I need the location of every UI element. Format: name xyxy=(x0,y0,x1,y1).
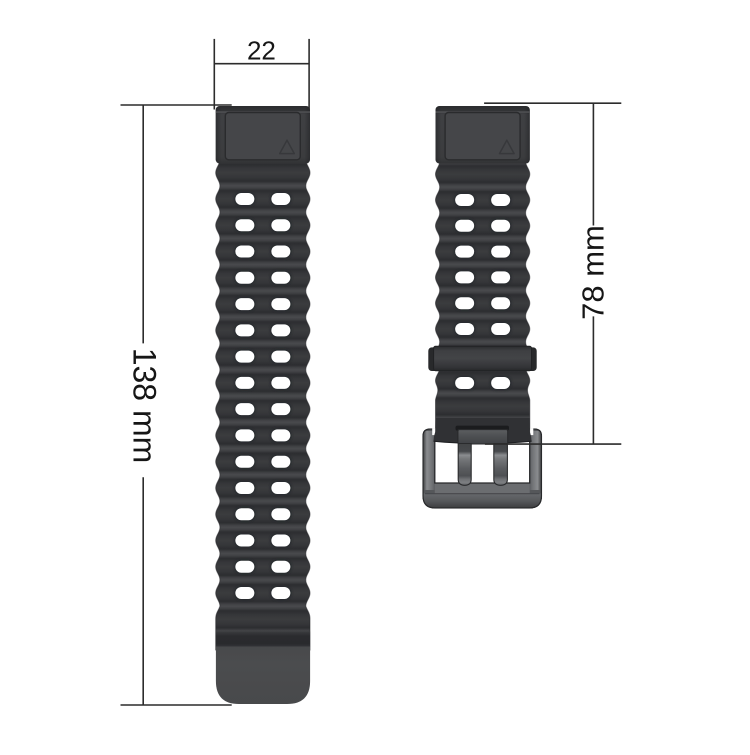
svg-text:138 mm: 138 mm xyxy=(127,348,163,464)
svg-text:22: 22 xyxy=(247,35,276,65)
svg-text:78 mm: 78 mm xyxy=(576,225,611,320)
